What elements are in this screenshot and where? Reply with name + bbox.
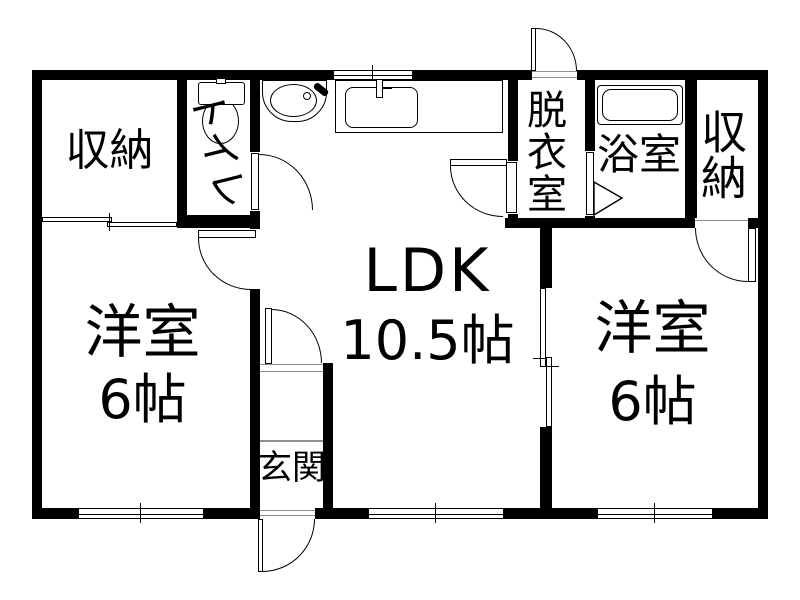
- window-bedroom-right: [597, 508, 713, 519]
- room-label-bathroom: 浴室: [594, 132, 684, 178]
- closet-right-door-sill: [695, 220, 748, 221]
- kitchen-faucet-spout: [383, 88, 392, 89]
- dressing-door-leaf: [450, 159, 507, 166]
- room-label-ldk: LDK: [310, 240, 545, 302]
- back-door-sill-1: [532, 71, 577, 72]
- window-ldk-tick: [435, 503, 436, 523]
- window-kitchen: [333, 70, 413, 80]
- entrance-step-line: [260, 440, 323, 442]
- room-label-dressing: 脱衣室: [524, 82, 572, 222]
- bedroom-left-door-opening: [250, 229, 260, 289]
- wall-corridor-right: [323, 363, 333, 518]
- closet-right-door-leaf: [748, 228, 756, 282]
- area-label-bedroom-left: 6帖: [60, 370, 225, 430]
- back-door-sill-2: [532, 77, 577, 78]
- closet-right-door-swing-arc: [695, 228, 748, 282]
- front-door-swing-arc: [262, 519, 315, 572]
- wall-left: [32, 70, 42, 519]
- room-label-closet-left: 収納: [42, 126, 177, 176]
- window-bedroom-right-tick: [654, 503, 655, 523]
- wall-mid-left: [177, 215, 260, 228]
- washbasin-bowl-icon: [270, 84, 317, 117]
- bath-door-fold-icon: [593, 181, 625, 217]
- window-bedroom-left: [78, 508, 204, 519]
- area-label-ldk: 10.5帖: [305, 310, 550, 372]
- dressing-door-swing-arc: [450, 166, 503, 217]
- bathtub-inner-icon: [602, 89, 678, 121]
- area-label-bedroom-right: 6帖: [570, 372, 735, 432]
- closet-left-slider-panel-1: [42, 217, 112, 222]
- room-label-bedroom-left: 洋室: [60, 302, 225, 362]
- room-label-entrance: 玄関: [256, 446, 328, 490]
- room-label-toilet: トイレ: [182, 86, 254, 213]
- closet-left-slider-tick: [109, 213, 110, 231]
- window-ldk: [368, 508, 504, 519]
- closet-left-slider-panel-2: [107, 222, 177, 227]
- wall-right: [758, 70, 768, 519]
- bedroom-left-door-swing-arc: [198, 238, 251, 290]
- toilet-flush-icon: [216, 78, 226, 84]
- floor-plan: 収納 トイレ LDK 10.5帖 脱衣室 浴室 収納 洋室 6帖 洋室 6帖 玄…: [0, 0, 800, 600]
- front-door-sill-1: [260, 510, 315, 511]
- room-label-closet-right: 収納: [702, 98, 754, 210]
- washbasin-faucet-icon: [303, 92, 311, 100]
- room-label-bedroom-right: 洋室: [570, 298, 735, 358]
- bedroom-left-door-leaf: [198, 230, 256, 238]
- back-door-swing-arc: [536, 28, 577, 71]
- toilet-door-swing-arc: [259, 154, 313, 210]
- front-door-sill-2: [260, 515, 315, 516]
- kitchen-faucet-icon: [376, 79, 383, 98]
- window-bedroom-left-tick: [140, 503, 141, 523]
